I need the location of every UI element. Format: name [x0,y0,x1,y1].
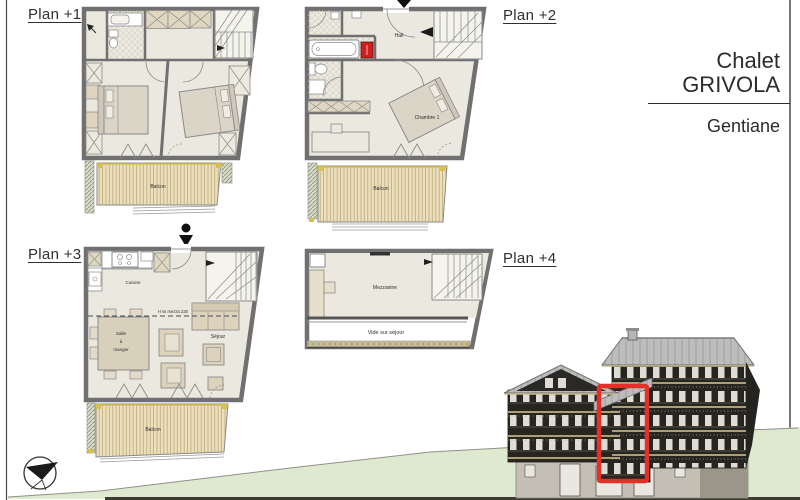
balcony: Balcon [308,163,447,230]
plan4-label: Plan +4 [503,250,556,267]
sofa [192,303,239,330]
plan4-mezzanine-label: Mezzanine [373,285,397,291]
staircase [206,252,257,301]
staircase [215,10,253,58]
plan3-label: Plan +3 [28,246,81,263]
plan2-balcony-label: Balcon [373,186,389,192]
plan3-mezzanine-height-note: H ss mezza 220 [158,309,189,314]
plan4-drawing: Mezzanine Vide sur séjour [307,251,491,348]
plan3-dining-label-1: Salle [116,331,127,336]
plan1-balcony-label: Balcon [150,184,166,190]
chimney [628,330,637,340]
plan2-bedroom-label: Chambre 1 [415,115,440,121]
title-building-name-line1: Chalet [716,48,780,74]
plan2-hall-label: Hall [395,33,404,39]
dining-table [90,309,149,379]
bed [98,86,148,134]
title-unit-name: Gentiane [707,116,780,137]
wardrobe-strip [308,101,370,112]
bathtub [309,40,359,58]
plan2-drawing: Hall Chambre 1 Balcon [307,0,484,230]
plan3-living-label: Séjour [211,334,226,340]
title-building-name-line2: GRIVOLA [682,72,780,98]
floorplan-sheet: Balcon [0,0,800,500]
plan1-drawing: Balcon [84,9,257,214]
building-elevation [504,328,760,498]
balcony: Balcon [85,161,232,214]
plan3-balcony-label: Balcon [145,427,161,433]
title-block-divider [648,103,790,104]
roof [602,338,754,365]
toilet [110,38,118,48]
bed [179,84,240,137]
desk [312,132,369,152]
plan3-dining-label-3: manger [113,347,129,352]
plan-drawing-canvas: Balcon [0,0,800,500]
entrance-arrow-icon [179,224,193,248]
balcony: Balcon [87,403,228,462]
plan3-kitchen-label: Cuisine [125,280,141,285]
plan4-void-label: Vide sur séjour [368,330,405,336]
staircase [424,254,482,300]
north-compass-icon [24,457,58,490]
wardrobe-row [146,11,211,29]
plan3-drawing: Cuisine Salle à manger [86,244,262,462]
staircase [434,11,482,59]
plan2-label: Plan +2 [503,7,556,24]
technical-duct [361,42,373,58]
plan1-label: Plan +1 [28,6,81,23]
